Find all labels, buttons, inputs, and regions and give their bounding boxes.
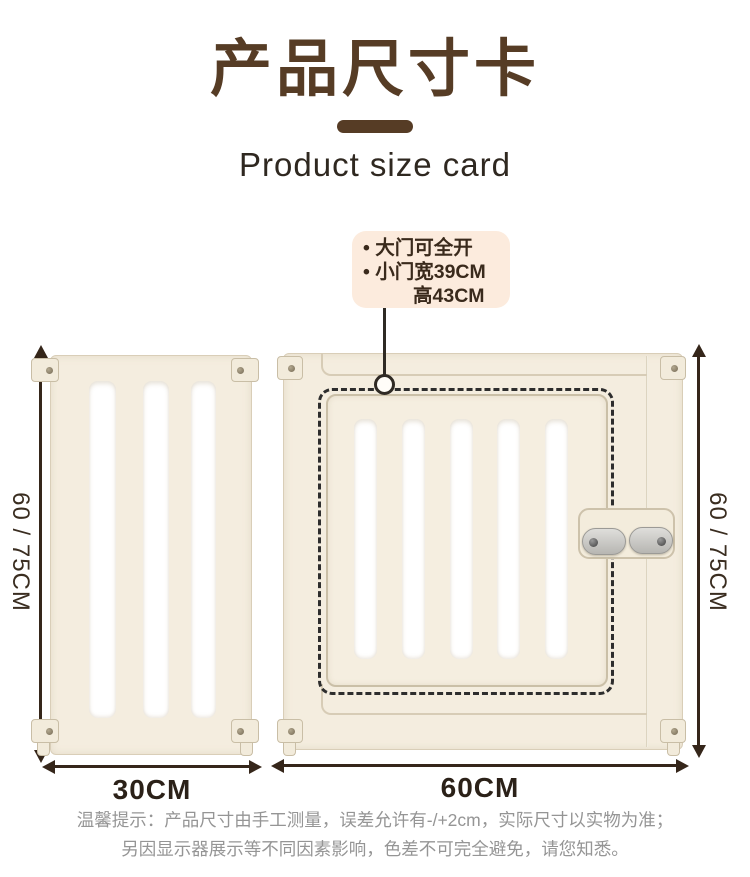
door-interior [354, 419, 568, 659]
width-label-right: 60CM [420, 772, 540, 804]
left-fence-panel [50, 355, 252, 755]
latch-pin-icon [657, 537, 666, 546]
screw-icon [237, 728, 244, 735]
screw-icon [671, 728, 678, 735]
door-opening [497, 419, 520, 659]
door-opening [450, 419, 473, 659]
door-spec-callout: • 大门可全开 • 小门宽39CM 高43CM [352, 231, 510, 308]
door-opening [354, 419, 377, 659]
connector-foot [240, 742, 253, 756]
door-opening [402, 419, 425, 659]
screw-icon [46, 367, 53, 374]
connector-tab [31, 719, 59, 743]
callout-line-1: • 大门可全开 [363, 236, 499, 260]
footer-note: 温馨提示：产品尺寸由手工测量，误差允许有-/+2cm，实际尺寸以实物为准； 另因… [0, 806, 750, 864]
door-latch-left[interactable] [582, 528, 626, 555]
callout-line-3: 高43CM [363, 284, 499, 308]
connector-tab [277, 356, 303, 380]
footer-note-line-1: 温馨提示：产品尺寸由手工测量，误差允许有-/+2cm，实际尺寸以实物为准； [0, 806, 750, 835]
connector-tab [660, 356, 686, 380]
product-size-card: 产品尺寸卡 Product size card • 大门可全开 • 小门宽39C… [0, 0, 750, 877]
connector-tab [231, 358, 259, 382]
top-rail-seam [321, 353, 647, 376]
connector-foot [283, 742, 296, 756]
connector-tab [231, 719, 259, 743]
screw-icon [237, 367, 244, 374]
screw-icon [671, 365, 678, 372]
callout-anchor-icon [374, 374, 395, 395]
connector-tab [660, 719, 686, 743]
height-arrow-right [697, 356, 700, 746]
small-door [326, 394, 608, 687]
latch-pin-icon [589, 538, 598, 547]
title-divider-dash [337, 120, 413, 133]
right-gate-panel [283, 353, 683, 750]
screw-icon [46, 728, 53, 735]
connector-foot [667, 742, 680, 756]
panel-opening [143, 381, 169, 718]
panel-opening [191, 381, 216, 718]
connector-tab [31, 358, 59, 382]
footer-note-line-2: 另因显示器展示等不同因素影响，色差不可完全避免，请您知悉。 [0, 835, 750, 864]
callout-pointer-line [383, 306, 386, 376]
page-title: 产品尺寸卡 [0, 18, 750, 108]
width-arrow-left [54, 765, 250, 768]
page-subtitle: Product size card [0, 146, 750, 184]
height-arrow-left [39, 357, 42, 751]
door-opening [545, 419, 568, 659]
connector-foot [37, 742, 50, 756]
width-arrow-right [283, 764, 677, 767]
connector-tab [277, 719, 303, 743]
height-label-left: 60 / 75CM [6, 486, 34, 618]
screw-icon [288, 365, 295, 372]
panel-opening [89, 381, 116, 718]
door-latch-right[interactable] [629, 527, 673, 554]
screw-icon [288, 728, 295, 735]
callout-line-2: • 小门宽39CM [363, 260, 499, 284]
height-label-right: 60 / 75CM [703, 486, 731, 618]
width-label-left: 30CM [92, 774, 212, 806]
